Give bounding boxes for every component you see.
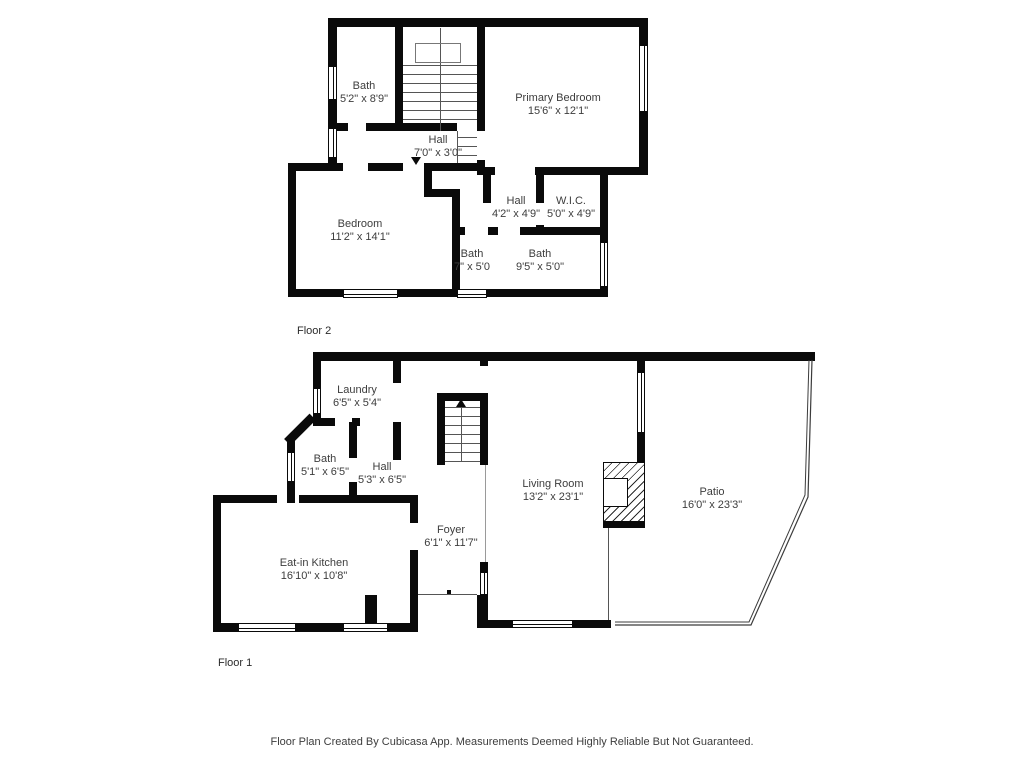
room-dims: 9'5" x 5'0" (516, 261, 564, 274)
room-name: Bath (516, 248, 564, 261)
floor-1-label: Floor 1 (218, 657, 252, 669)
stair-landing (415, 43, 461, 63)
window (343, 623, 388, 632)
window (512, 620, 573, 628)
window (328, 66, 337, 100)
room-dims: 13'2" x 23'1" (522, 491, 583, 504)
room-name: Hall (414, 134, 462, 147)
wall-segment (430, 163, 483, 171)
wall-segment (536, 225, 544, 235)
stair-tread (445, 452, 480, 453)
wall-segment (349, 422, 357, 458)
wall-segment (288, 163, 296, 297)
room-label-bath-upper: Bath 5'2" x 8'9" (340, 80, 388, 106)
room-label-wic: W.I.C. 5'0" x 4'9" (547, 195, 595, 221)
wall-segment (395, 18, 403, 131)
wall-segment (483, 175, 491, 203)
room-dims: 15'6" x 12'1" (515, 105, 601, 118)
floor-2-label: Floor 2 (297, 325, 331, 337)
disclaimer-text: Floor Plan Created By Cubicasa App. Meas… (0, 736, 1024, 748)
wall-segment (480, 562, 488, 572)
stair-bottom-line (445, 461, 480, 462)
stair-tread (403, 101, 477, 102)
wall-segment (520, 227, 608, 235)
room-label-bath-small: Bath 7" x 5'0 (454, 248, 490, 274)
wall-segment (410, 550, 418, 632)
room-label-primary-bedroom: Primary Bedroom 15'6" x 12'1" (515, 92, 601, 118)
window (328, 128, 337, 158)
window (480, 572, 488, 595)
stair-tread (403, 92, 477, 93)
room-dims: 4'2" x 4'9" (492, 208, 540, 221)
room-dims: 7" x 5'0 (454, 261, 490, 274)
window (343, 289, 398, 298)
room-name: Bath (454, 248, 490, 261)
stair-tread (403, 83, 477, 84)
stair-tread (445, 443, 480, 444)
room-name: Hall (358, 461, 406, 474)
room-label-bath-95: Bath 9'5" x 5'0" (516, 248, 564, 274)
room-name: Primary Bedroom (515, 92, 601, 105)
stair-tread (445, 425, 480, 426)
wall-segment (488, 227, 498, 235)
room-name: Hall (492, 195, 540, 208)
room-label-hall-lower: Hall 4'2" x 4'9" (492, 195, 540, 221)
entry-threshold-line (418, 594, 477, 595)
wall-segment (437, 393, 445, 465)
room-name: Foyer (424, 524, 477, 537)
floor-plan-canvas: Bath 5'2" x 8'9" Hall 7'0" x 3'0" Primar… (0, 0, 1024, 768)
window (238, 623, 296, 632)
window (287, 452, 295, 482)
wall-segment (393, 360, 401, 383)
stair-tread (403, 119, 477, 120)
room-dims: 5'2" x 8'9" (340, 93, 388, 106)
wall-segment (288, 163, 343, 171)
room-name: Living Room (522, 478, 583, 491)
wall-segment (480, 393, 488, 465)
wall-segment (313, 418, 335, 426)
wall-segment (299, 495, 418, 503)
wall-segment (365, 595, 377, 623)
room-name: Patio (682, 486, 742, 499)
room-label-bedroom: Bedroom 11'2" x 14'1" (330, 218, 390, 244)
room-name: Bath (301, 453, 349, 466)
room-name: W.I.C. (547, 195, 595, 208)
wall-segment (452, 227, 465, 235)
wall-segment (393, 422, 401, 460)
stair-tread (445, 416, 480, 417)
room-dims: 11'2" x 14'1" (330, 231, 390, 244)
room-name: Eat-in Kitchen (280, 557, 348, 570)
wall-segment (477, 167, 495, 175)
room-label-laundry: Laundry 6'5" x 5'4" (333, 384, 381, 410)
door-jamb-tick (447, 590, 451, 594)
window (313, 388, 321, 414)
room-dims: 6'5" x 5'4" (333, 397, 381, 410)
wall-segment (452, 197, 460, 297)
room-name: Bedroom (330, 218, 390, 231)
stair-tread (445, 407, 480, 408)
room-dims: 16'0" x 23'3" (682, 499, 742, 512)
room-dims: 5'3" x 6'5" (358, 474, 406, 487)
stair-tread (403, 74, 477, 75)
wall-segment (535, 167, 648, 175)
stair-tread (445, 434, 480, 435)
wall-segment (403, 123, 457, 131)
room-label-foyer: Foyer 6'1" x 11'7" (424, 524, 477, 550)
room-divider-line (485, 465, 486, 562)
wall-segment (328, 18, 648, 27)
room-label-kitchen: Eat-in Kitchen 16'10" x 10'8" (280, 557, 348, 583)
room-label-hall-upper: Hall 7'0" x 3'0" (414, 134, 462, 160)
room-label-patio: Patio 16'0" x 23'3" (682, 486, 742, 512)
window (457, 289, 487, 298)
wall-segment (213, 495, 277, 503)
wall-segment (213, 495, 221, 632)
room-dims: 7'0" x 3'0" (414, 147, 462, 160)
wall-segment (288, 289, 608, 297)
room-dims: 16'10" x 10'8" (280, 570, 348, 583)
room-dims: 6'1" x 11'7" (424, 537, 477, 550)
wall-segment (368, 163, 403, 171)
room-label-hall-f1: Hall 5'3" x 6'5" (358, 461, 406, 487)
room-label-bath-f1: Bath 5'1" x 6'5" (301, 453, 349, 479)
wall-segment (424, 189, 460, 197)
wall-segment (477, 620, 512, 628)
wall-segment (477, 18, 485, 131)
window (639, 45, 648, 112)
room-dims: 5'1" x 6'5" (301, 466, 349, 479)
room-name: Bath (340, 80, 388, 93)
room-name: Laundry (333, 384, 381, 397)
stair-tread (403, 65, 477, 66)
stair-tread (403, 110, 477, 111)
wall-segment (480, 358, 488, 366)
stair-direction-arrow-icon (456, 399, 466, 407)
room-label-living-room: Living Room 13'2" x 23'1" (522, 478, 583, 504)
wall-segment (410, 495, 418, 523)
room-dims: 5'0" x 4'9" (547, 208, 595, 221)
window (600, 242, 608, 287)
